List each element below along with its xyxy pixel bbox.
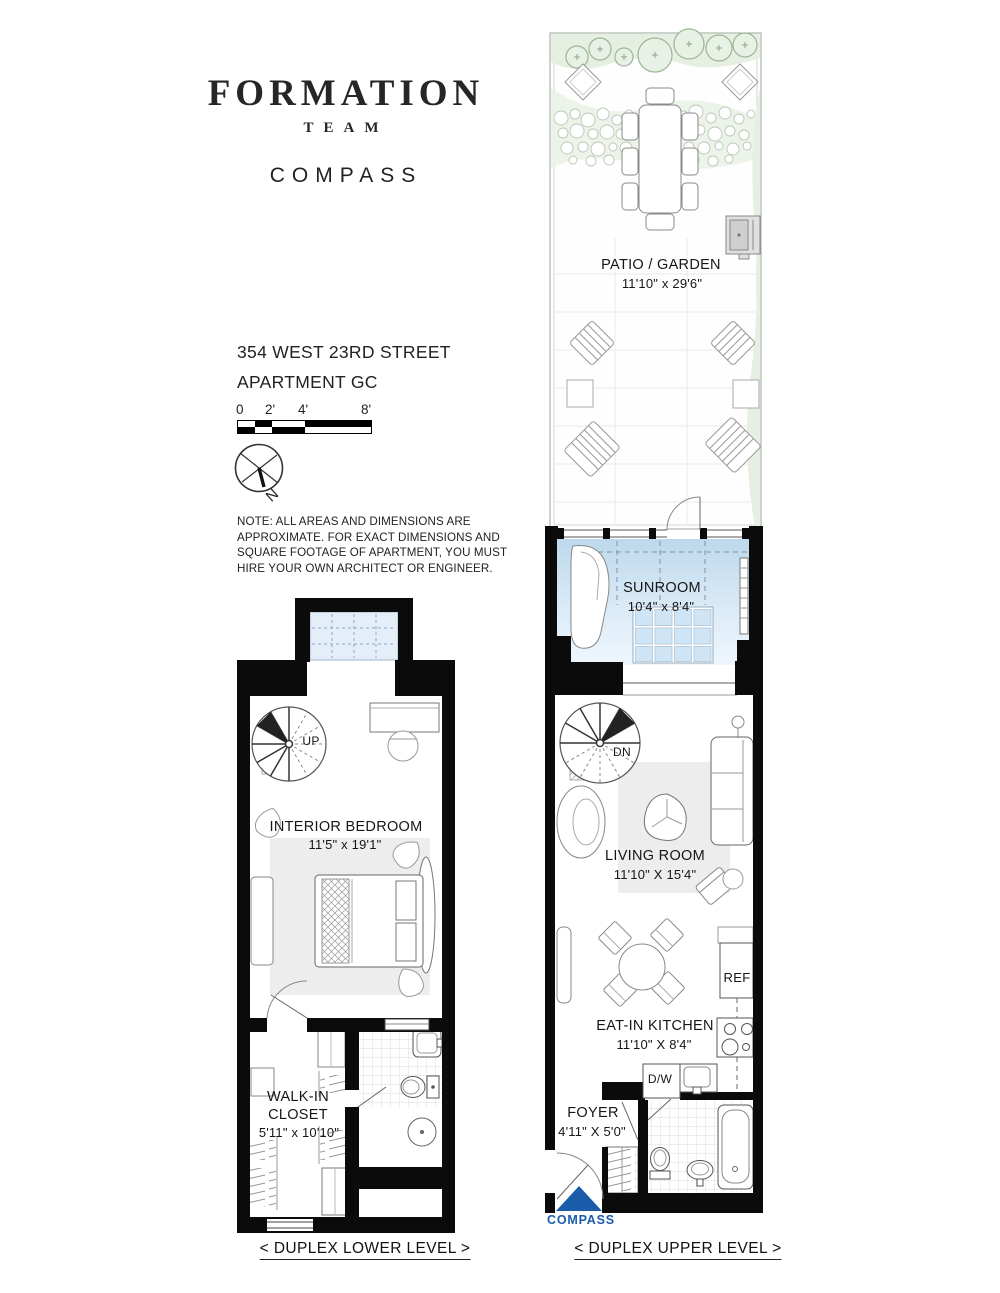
stair-label-up: UP [302,732,319,750]
radiator-sunroom [740,558,748,634]
room-dims-kitchen: 11'10" X 8'4" [616,1036,691,1054]
scale-tick-0: 0 [236,402,244,417]
sofa [711,737,753,845]
brand-team: TEAM [188,120,504,137]
room-dims-patio: 11'10" x 29'6" [622,275,702,293]
address-line2: APARTMENT GC [237,367,451,397]
room-dims-closet: 5'11" x 10'10" [259,1124,339,1142]
room-label-kitchen: EAT-IN KITCHEN [596,1017,714,1035]
floor-lamp [732,716,744,738]
compass-footer-logo: COMPASS [547,1186,611,1227]
grill [726,216,760,259]
skylight-lower [310,612,398,660]
refrigerator-label: REF [724,969,751,987]
bench [251,877,273,965]
note-line: SQUARE FOOTAGE OF APARTMENT, YOU MUST [237,545,507,561]
scale-tick-4: 4' [298,402,308,417]
counter-top [718,927,753,943]
round-side-table [723,869,743,889]
brand-formation: FORMATION [188,72,504,115]
compass-footer-text: COMPASS [547,1213,611,1227]
caption-lower-level: < DUPLEX LOWER LEVEL > [260,1240,471,1260]
note-line: HIRE YOUR OWN ARCHITECT OR ENGINEER. [237,561,507,577]
brand-block: FORMATION TEAM COMPASS [188,72,504,188]
stair-label-dn: DN [613,743,631,761]
compass-triangle-icon [556,1186,602,1211]
dishwasher-label: D/W [648,1070,672,1088]
bathtub [718,1105,753,1189]
room-label-closet: WALK-IN CLOSET [250,1088,346,1124]
room-dims-sunroom: 10'4" x 8'4" [628,598,694,616]
plan-lower-level: UP INTERIOR BEDROOM 11'5" x 19'1" WALK-I… [237,598,455,1233]
room-dims-living: 11'10" X 15'4" [614,866,697,884]
brand-compass-top: COMPASS [188,164,504,188]
address-line1: 354 WEST 23RD STREET [237,337,451,367]
room-label-patio: PATIO / GARDEN [601,256,721,274]
room-dims-bedroom: 11'5" x 19'1" [309,836,382,854]
kitchen-table-set [598,918,685,1007]
toilet [650,1148,670,1180]
bathroom-lower [359,1029,442,1146]
desk [370,703,439,761]
room-label-living: LIVING ROOM [605,847,705,865]
side-table-right [733,380,759,408]
sunroom-window-band [557,528,749,539]
armchair [557,786,605,858]
side-table-left [567,380,593,407]
note-line: APPROXIMATE. FOR EXACT DIMENSIONS AND [237,530,507,546]
disclaimer-note: NOTE: ALL AREAS AND DIMENSIONS ARE APPRO… [237,514,507,576]
room-label-bedroom: INTERIOR BEDROOM [269,818,422,836]
note-line: NOTE: ALL AREAS AND DIMENSIONS ARE [237,514,507,530]
floor-plan-sheet: { "header": { "brand_primary": "FORMATIO… [0,0,1000,1293]
compass-rose-icon [227,436,291,500]
caption-upper-level: < DUPLEX UPPER LEVEL > [574,1240,781,1260]
address-block: 354 WEST 23RD STREET APARTMENT GC [237,337,451,397]
scale-tick-8: 8' [361,402,371,417]
room-label-sunroom: SUNROOM [623,579,701,597]
stove [717,1018,753,1057]
radiator-kitchen [557,927,571,1003]
room-label-foyer: FOYER [567,1104,618,1122]
scale-bar [237,420,372,434]
plan-upper-level: PATIO / GARDEN 11'10" x 29'6" SUNROOM 10… [543,28,765,1233]
scale-tick-2: 2' [265,402,275,417]
room-dims-foyer: 4'11" X 5'0" [558,1123,626,1141]
